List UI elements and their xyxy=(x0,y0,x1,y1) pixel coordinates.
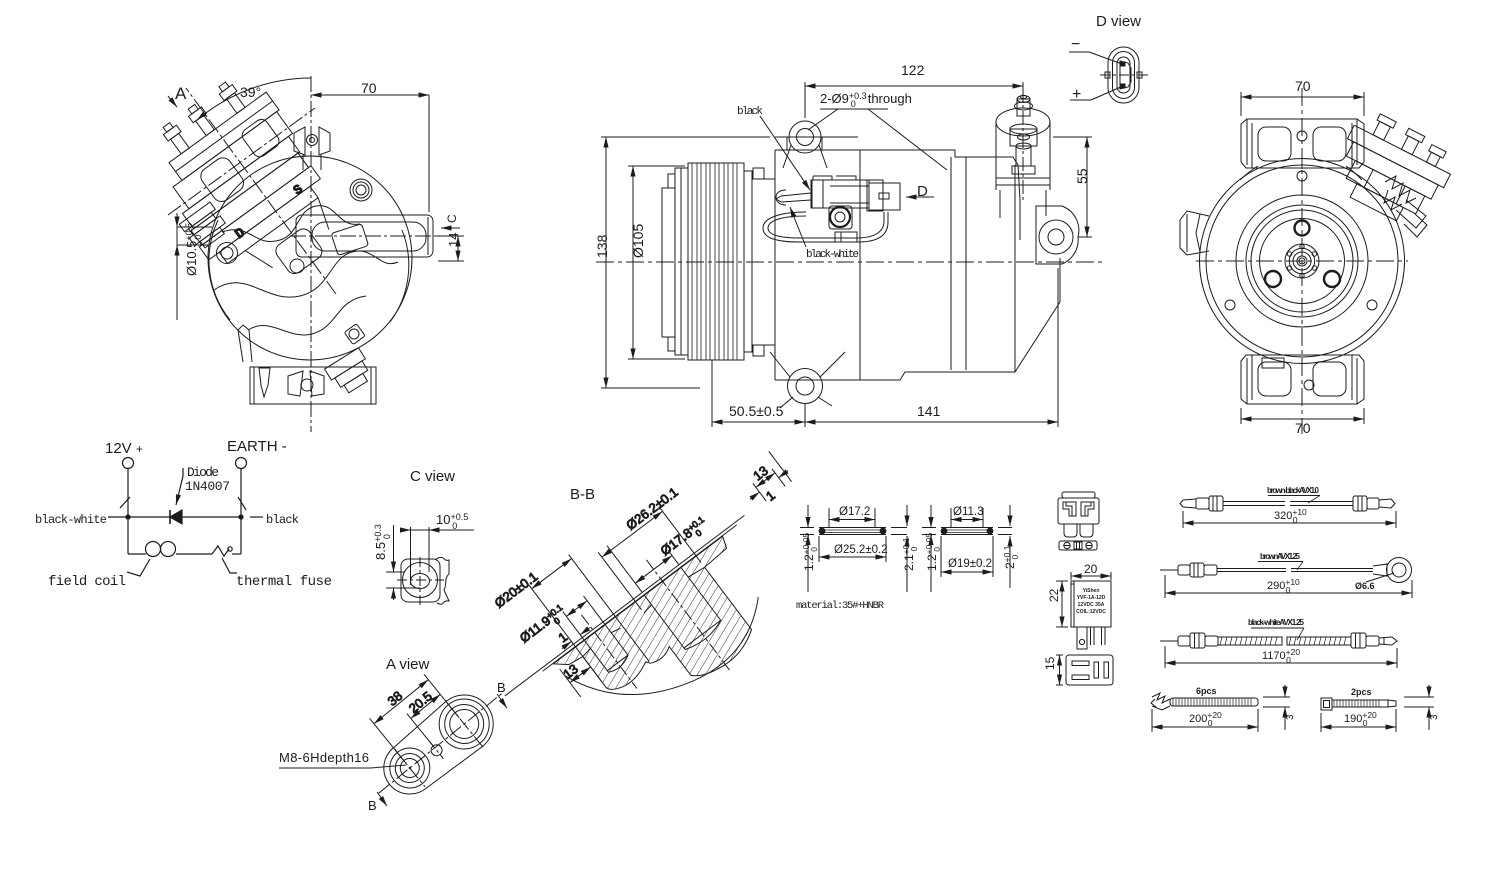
svg-text:3: 3 xyxy=(1285,714,1296,720)
svg-text:70: 70 xyxy=(1295,78,1311,94)
svg-text:14: 14 xyxy=(446,233,461,247)
svg-text:+: + xyxy=(1072,86,1081,103)
svg-text:Ø19±0.2: Ø19±0.2 xyxy=(948,558,992,570)
svg-text:C: C xyxy=(445,214,459,223)
svg-text:black-white: black-white xyxy=(806,249,859,261)
svg-text:field coil: field coil xyxy=(48,574,126,590)
svg-text:black-white: black-white xyxy=(35,513,107,527)
svg-text:C view: C view xyxy=(410,468,455,485)
svg-text:YVF-1A-12D: YVF-1A-12D xyxy=(1077,595,1106,601)
svg-text:1N4007: 1N4007 xyxy=(185,479,230,494)
svg-text:2pcs: 2pcs xyxy=(1351,687,1372,697)
svg-text:6pcs: 6pcs xyxy=(1196,686,1217,696)
svg-text:138: 138 xyxy=(594,234,610,258)
svg-text:141: 141 xyxy=(917,403,941,419)
svg-text:50.5±0.5: 50.5±0.5 xyxy=(729,403,784,419)
svg-text:brown-blackAVX1.0: brown-blackAVX1.0 xyxy=(1267,486,1320,495)
svg-text:M8-6Hdepth16: M8-6Hdepth16 xyxy=(279,750,369,765)
svg-text:−: − xyxy=(1071,36,1080,53)
svg-text:70: 70 xyxy=(361,80,377,96)
svg-text:B: B xyxy=(368,798,377,813)
svg-text:Ø6.6: Ø6.6 xyxy=(1355,581,1375,591)
svg-text:thermal fuse: thermal fuse xyxy=(236,574,332,590)
svg-text:Ø11.3: Ø11.3 xyxy=(953,506,983,518)
svg-text:22: 22 xyxy=(1047,588,1061,602)
svg-text:B-B: B-B xyxy=(570,486,595,503)
svg-text:122: 122 xyxy=(901,62,925,78)
svg-text:A: A xyxy=(175,84,187,103)
svg-text:39°: 39° xyxy=(240,84,261,100)
svg-text:20: 20 xyxy=(1084,562,1098,576)
svg-text:A view: A view xyxy=(386,656,430,673)
svg-text:D view: D view xyxy=(1096,13,1141,30)
svg-text:12V +: 12V + xyxy=(105,440,143,457)
svg-text:COIL:12VDC: COIL:12VDC xyxy=(1076,609,1106,615)
svg-text:black: black xyxy=(737,106,763,118)
svg-text:55: 55 xyxy=(1074,168,1090,184)
svg-text:70: 70 xyxy=(1295,420,1311,436)
svg-text:Diode: Diode xyxy=(187,465,219,480)
svg-text:brownAVX1.25: brownAVX1.25 xyxy=(1260,552,1301,561)
svg-text:EARTH -: EARTH - xyxy=(227,438,287,455)
svg-text:Ø25.2±0.2: Ø25.2±0.2 xyxy=(834,544,888,556)
svg-text:material:35#+HNBR: material:35#+HNBR xyxy=(796,600,885,612)
svg-text:12VDC 35A: 12VDC 35A xyxy=(1078,602,1105,608)
svg-text:Ø105: Ø105 xyxy=(630,224,646,258)
svg-text:black-whiteAVX1.25: black-whiteAVX1.25 xyxy=(1248,618,1305,627)
svg-text:B: B xyxy=(497,680,506,695)
svg-text:Ø17.2: Ø17.2 xyxy=(839,506,870,518)
svg-text:black: black xyxy=(266,513,299,527)
svg-text:YiShen: YiShen xyxy=(1083,588,1100,594)
svg-text:3: 3 xyxy=(1429,714,1440,720)
svg-text:D: D xyxy=(917,183,928,200)
svg-text:15: 15 xyxy=(1043,656,1057,670)
